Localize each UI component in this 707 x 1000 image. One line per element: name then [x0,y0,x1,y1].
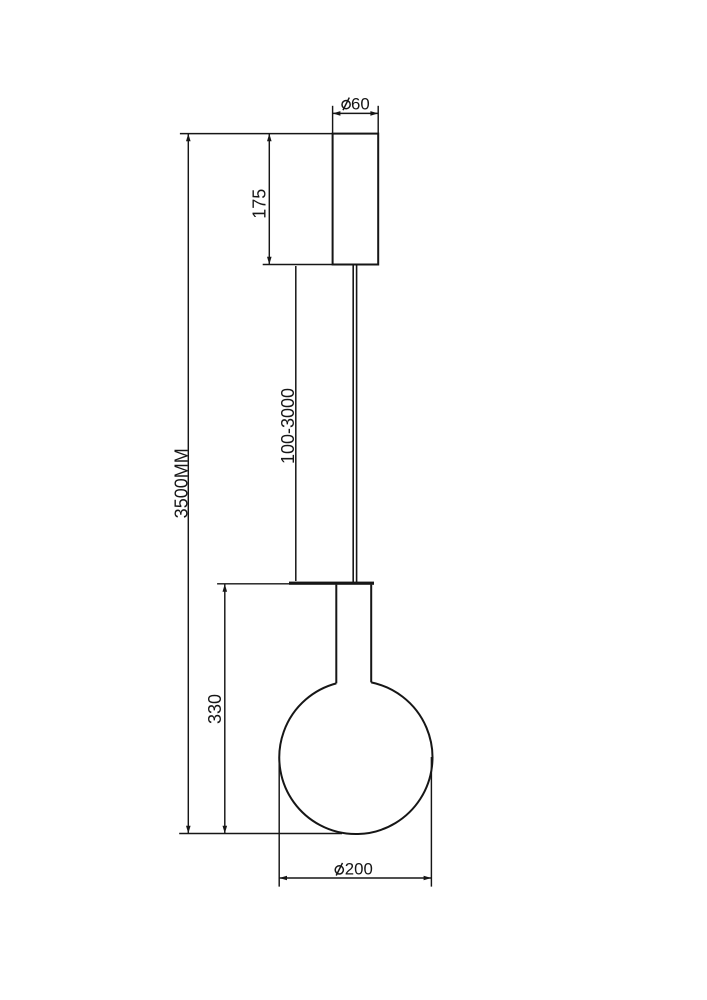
svg-text:60: 60 [351,94,370,113]
svg-text:3500MM: 3500MM [171,448,191,518]
svg-text:200: 200 [345,860,373,879]
svg-text:100-3000: 100-3000 [278,388,298,464]
svg-text:330: 330 [205,694,225,724]
svg-text:175: 175 [250,189,270,219]
